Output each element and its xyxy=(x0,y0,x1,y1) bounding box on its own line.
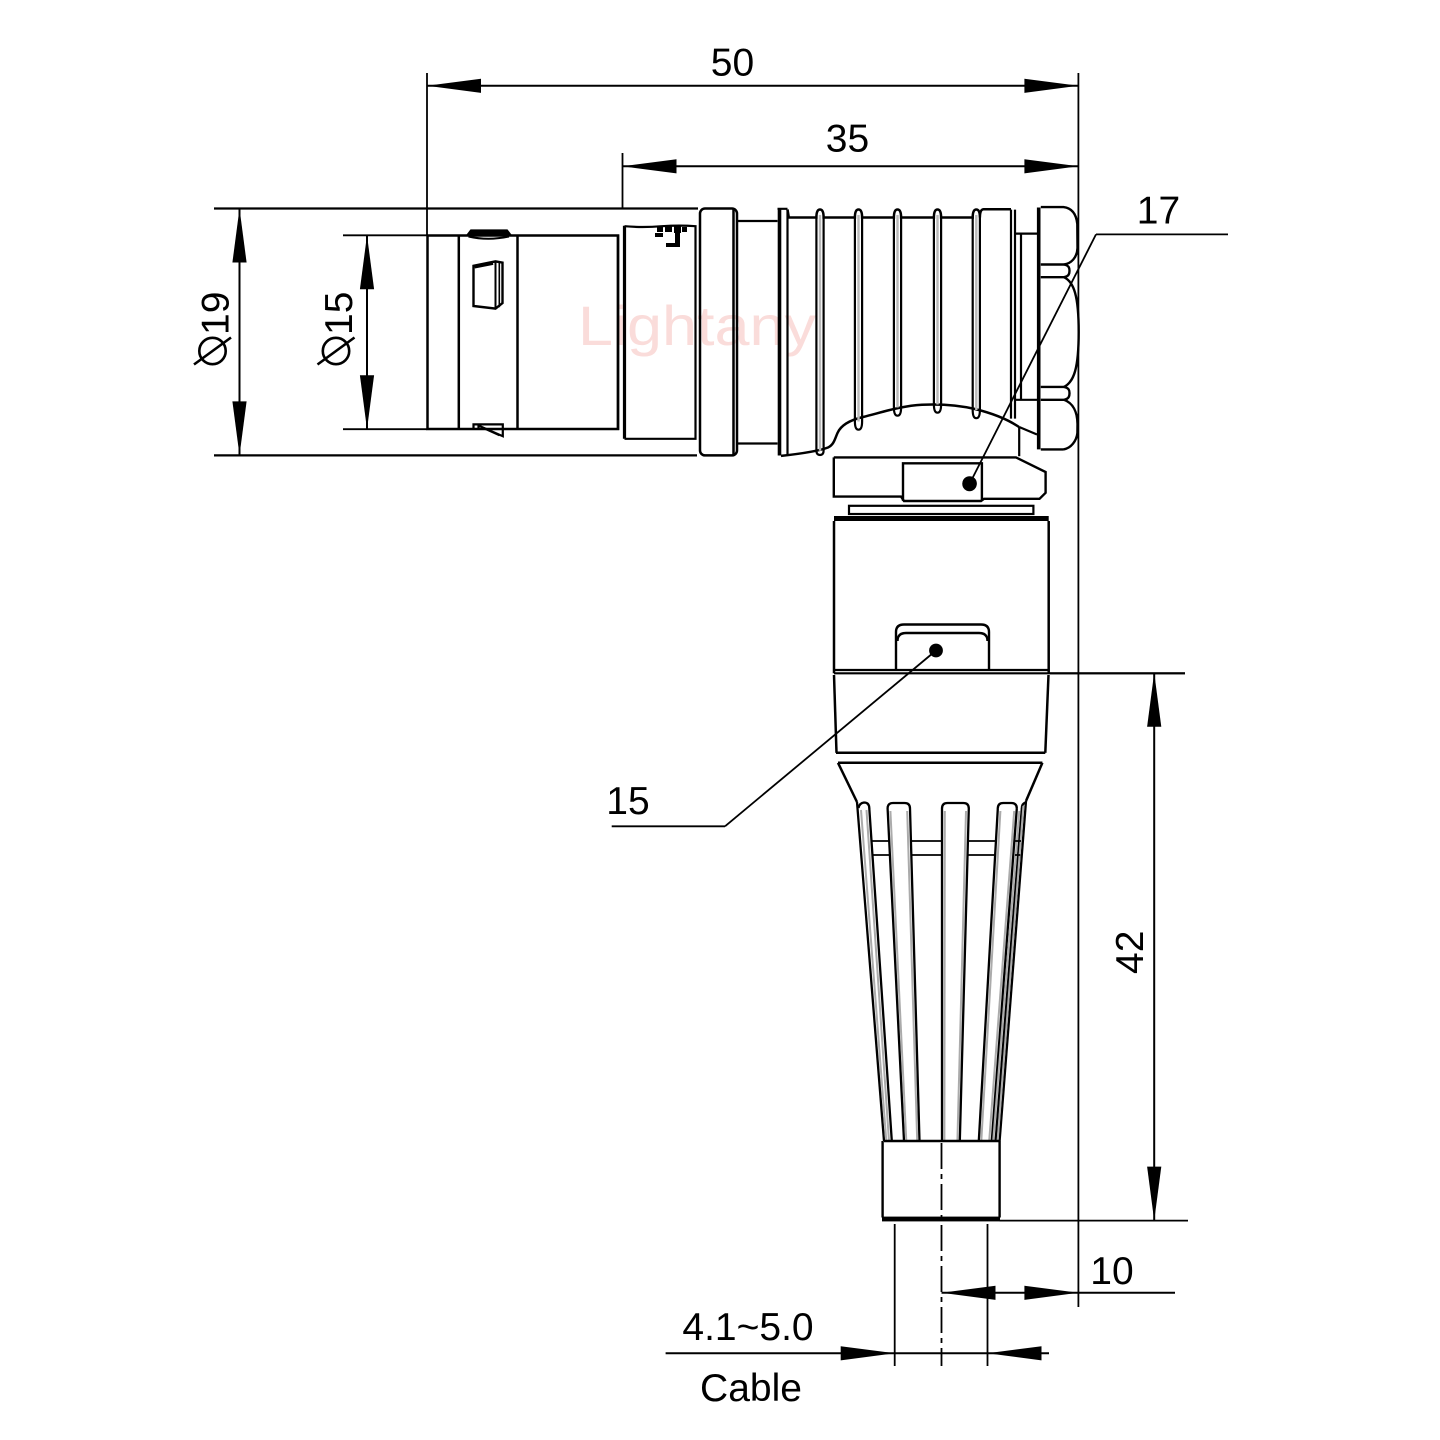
svg-text:15: 15 xyxy=(318,292,361,335)
svg-text:10: 10 xyxy=(1090,1250,1133,1293)
svg-text:17: 17 xyxy=(1137,190,1180,233)
svg-text:42: 42 xyxy=(1109,931,1152,974)
svg-text:35: 35 xyxy=(826,118,869,161)
svg-text:Cable: Cable xyxy=(700,1367,802,1410)
svg-text:4.1~5.0: 4.1~5.0 xyxy=(682,1306,813,1349)
svg-text:50: 50 xyxy=(711,42,754,85)
svg-text:15: 15 xyxy=(606,780,649,823)
svg-text:19: 19 xyxy=(195,292,238,335)
